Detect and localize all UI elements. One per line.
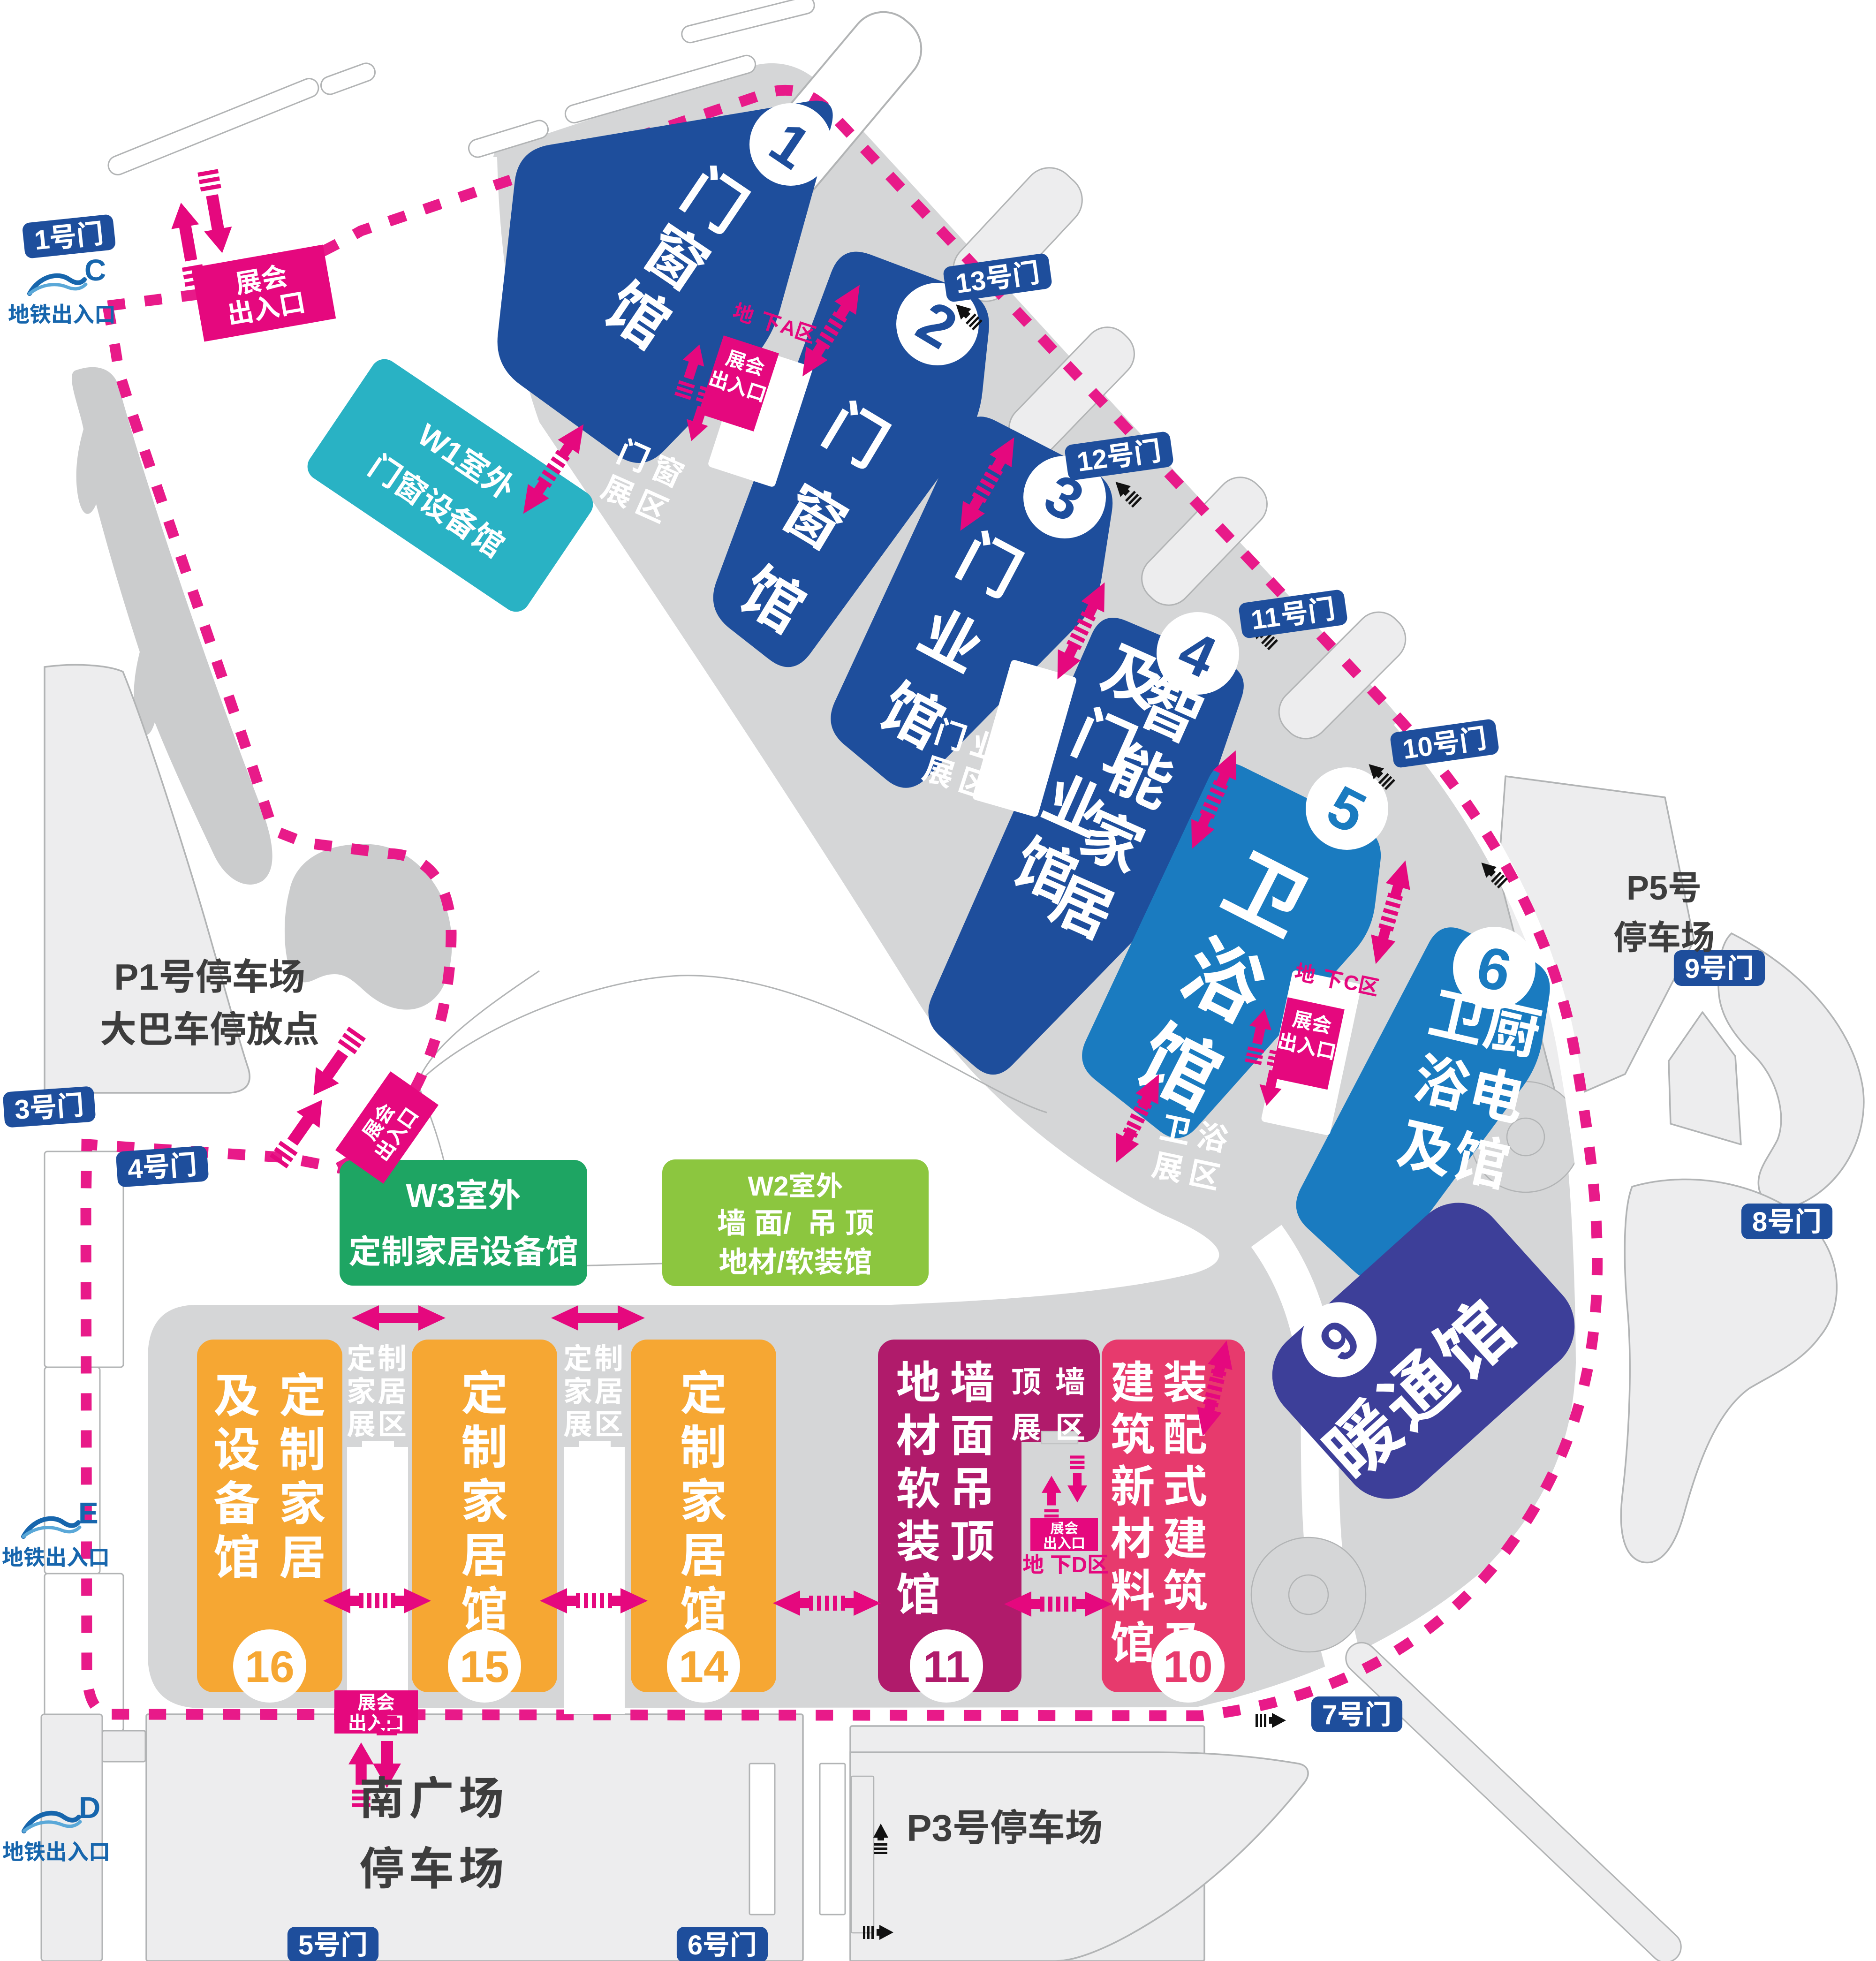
svg-text:9: 9: [1685, 954, 1700, 984]
svg-text:P3: P3: [907, 1807, 953, 1849]
svg-text:/: /: [783, 1207, 791, 1240]
svg-text:/: /: [777, 1246, 785, 1279]
svg-text:W3: W3: [406, 1177, 455, 1214]
svg-text:E: E: [78, 1496, 98, 1530]
svg-text:D: D: [79, 1791, 100, 1825]
svg-text:11: 11: [923, 1642, 970, 1692]
svg-text:3: 3: [14, 1094, 31, 1125]
svg-text:6: 6: [688, 1930, 703, 1961]
svg-text:4: 4: [127, 1153, 144, 1185]
svg-text:15: 15: [460, 1642, 509, 1692]
svg-text:16: 16: [245, 1642, 295, 1692]
svg-text:8: 8: [1752, 1207, 1767, 1237]
svg-text:10: 10: [1400, 731, 1435, 765]
svg-text:7: 7: [1322, 1700, 1337, 1730]
svg-text:5: 5: [298, 1930, 313, 1961]
svg-text:P5: P5: [1626, 870, 1668, 907]
svg-text:11: 11: [1249, 601, 1282, 636]
svg-text:12: 12: [1075, 443, 1109, 477]
svg-text:10: 10: [1163, 1642, 1213, 1692]
svg-text:D: D: [1072, 1552, 1087, 1577]
svg-text:C: C: [84, 253, 106, 287]
svg-text:W2: W2: [748, 1171, 789, 1202]
svg-text:13: 13: [953, 265, 988, 299]
svg-text:1: 1: [33, 224, 51, 256]
svg-text:14: 14: [679, 1642, 728, 1692]
svg-text:P1: P1: [114, 956, 159, 998]
